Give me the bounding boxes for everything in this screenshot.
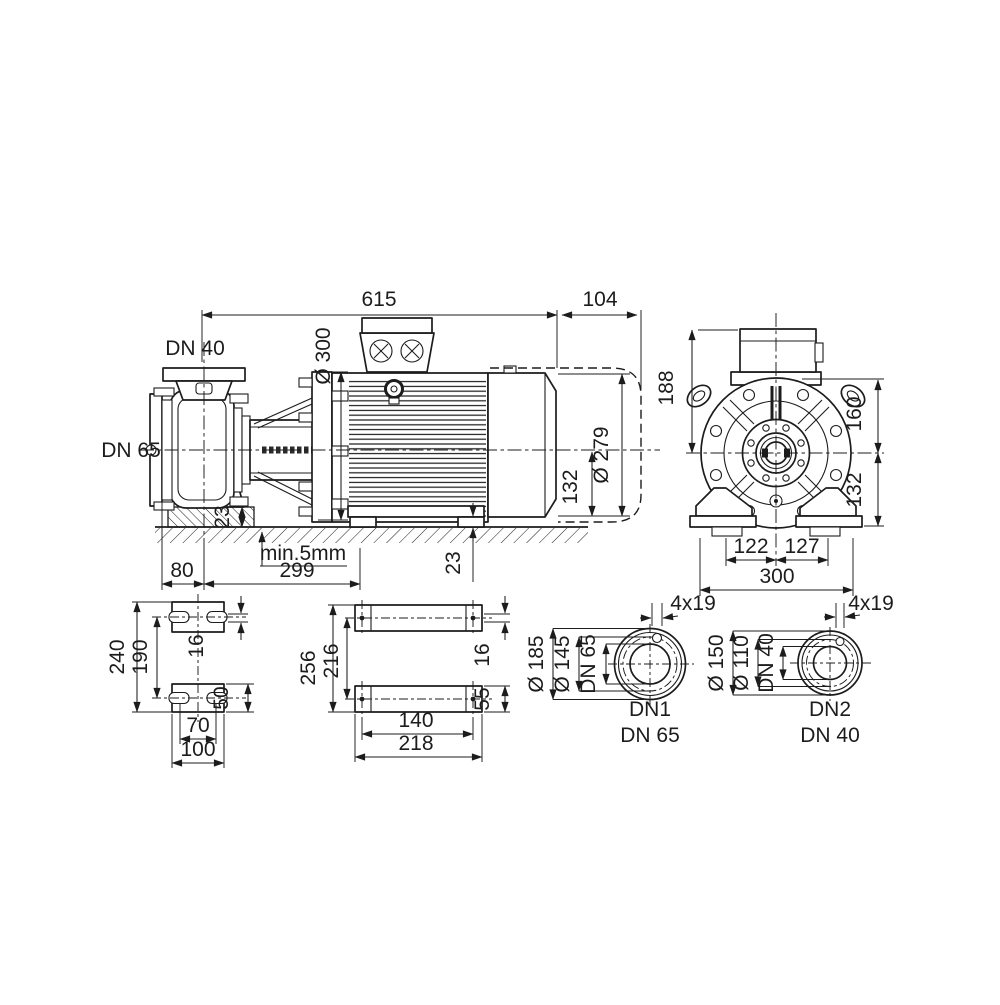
drawing-page: 615 104 DN 40 DN 65 Ø 300 Ø 279 132 23 2… [0,0,1000,1000]
motor-foot-footprint [345,600,492,717]
dim-f2-bore: DN 40 [755,633,778,693]
label-f1-name: DN1 [629,698,671,721]
dim-length-main: 615 [361,288,396,311]
label-f2-name: DN2 [809,698,851,721]
end-view [683,313,884,566]
dim-shaft-height: 132 [559,469,582,504]
dim-pf-slot: 16 [185,634,208,657]
dim-mf-foot-height: 55 [471,687,494,710]
label-port-top: DN 40 [165,337,225,360]
pump-dimensional-drawing: 615 104 DN 40 DN 65 Ø 300 Ø 279 132 23 2… [0,0,1000,1000]
dim-f2-bolt-circle: Ø 110 [730,635,753,691]
terminal-box [360,318,434,372]
flange1-bolt-hole [653,634,662,643]
motor-fins [349,379,486,517]
dim-bottom-half: 132 [843,472,866,507]
dim-f1-outer: Ø 185 [525,635,548,692]
dim-pump-foot-height: 23 [211,505,234,528]
flange-view-dn2 [790,627,872,701]
dim-mf-width: 218 [398,732,433,755]
dim-mf-holes: 140 [398,709,433,732]
motor [299,366,556,527]
dim-top-half: 160 [843,396,866,431]
dim-mf-centers: 216 [320,643,343,678]
dim-mf-overall: 256 [297,650,320,685]
dim-pf-width: 100 [180,738,215,761]
label-f1-size: DN 65 [620,724,680,747]
dim-motor-diameter: Ø 279 [590,426,613,483]
dim-suction-offset: 80 [170,559,193,582]
dim-pf-overall: 240 [106,639,129,674]
dim-f2-holes: 4x19 [848,592,894,615]
motor-feet [348,506,484,517]
end-terminal-box [731,329,823,385]
dim-pf-centers: 190 [129,639,152,674]
label-f2-size: DN 40 [800,724,860,747]
dim-box-height: 188 [655,370,678,405]
dim-f2-outer: Ø 150 [705,634,728,691]
dim-pf-foot-height: 50 [210,686,233,709]
dim-f1-bore: DN 65 [577,634,600,694]
dim-pf-holes: 70 [186,714,209,737]
dim-mf-slot: 16 [471,643,494,666]
flange-view-dn1 [608,624,694,706]
dim-motor-foot-height: 23 [442,551,465,574]
dim-length-ext: 104 [582,288,617,311]
dim-foot-length: 299 [279,559,314,582]
pump-volute [146,368,250,510]
dim-flange-diameter: Ø 300 [312,327,335,384]
flange2-bolt-hole [836,638,844,646]
dim-end-width: 300 [759,565,794,588]
dim-f1-holes: 4x19 [670,592,716,615]
motor-end-cap [488,373,556,517]
dim-foot-left: 122 [733,535,768,558]
dim-foot-right: 127 [784,535,819,558]
label-port-left: DN 65 [101,439,161,462]
dim-f1-bolt-circle: Ø 145 [551,635,574,692]
